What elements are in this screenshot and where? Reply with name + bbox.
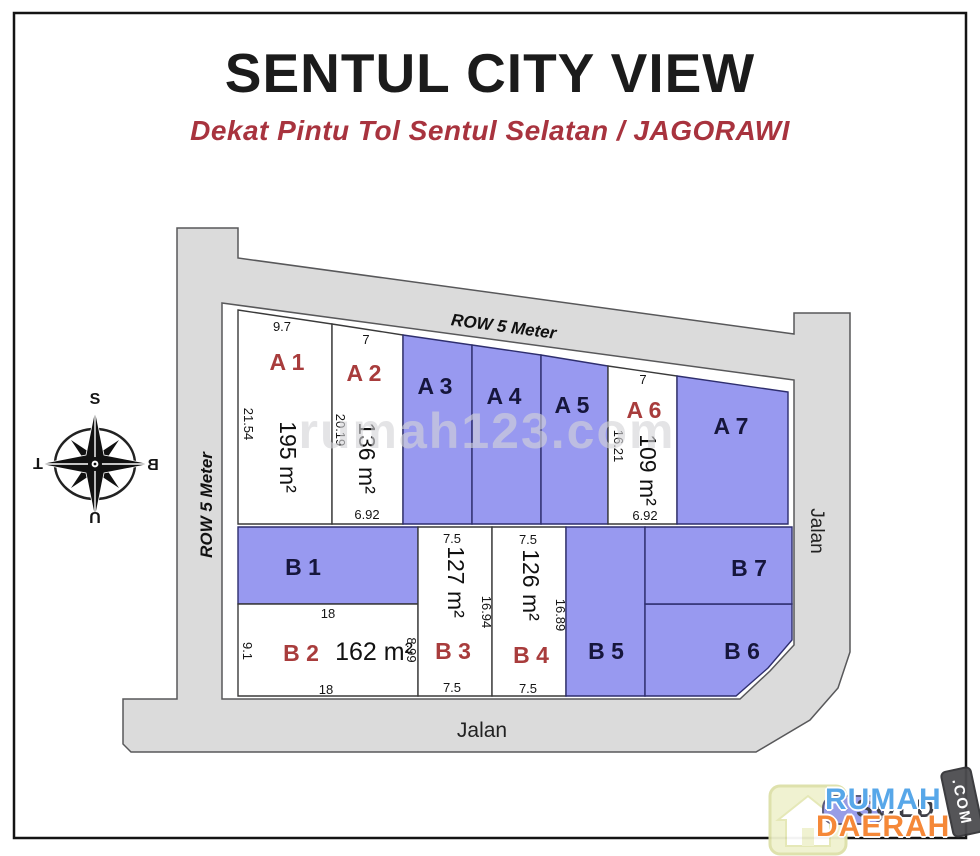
road-label-left-row: ROW 5 Meter — [197, 451, 216, 558]
plot-a6-dim-bottom: 6.92 — [632, 508, 657, 523]
plot-a7-shape — [677, 376, 788, 524]
compass-hub-dot — [94, 463, 97, 466]
plot-b5-shape — [566, 527, 645, 696]
plot-b4-dim-top: 7.5 — [519, 532, 537, 547]
plot-b7-shape — [645, 527, 792, 604]
compass-rose: S B U T — [33, 391, 159, 525]
plot-b2: 18 9.1 8.99 18 B 2 162 m² — [238, 604, 419, 697]
plot-b4: 7.5 16.89 7.5 B 4 126 m² — [492, 527, 568, 696]
plot-b1-label: B 1 — [285, 554, 321, 580]
plot-a3-label: A 3 — [418, 373, 453, 399]
plot-b3-label: B 3 — [435, 638, 471, 664]
plot-b2-area: 162 m² — [335, 638, 413, 666]
plot-a6-dim-top: 7 — [639, 372, 646, 387]
agency-logo: SOLD RUMAH DAERAH .COM — [768, 778, 980, 856]
compass-letter-bottom: U — [89, 508, 101, 525]
plot-a2-dim-top: 7 — [362, 332, 369, 347]
road-label-right-street: Jalan — [806, 508, 827, 553]
plot-b1-shape — [238, 527, 418, 604]
center-watermark: rumah123.com — [299, 403, 676, 459]
plot-b4-dim-bottom: 7.5 — [519, 681, 537, 696]
plot-a1-area: 195 m² — [275, 421, 301, 493]
plot-a7-label: A 7 — [714, 413, 749, 439]
compass-letter-left: T — [33, 454, 43, 471]
plot-b3-dim-bottom: 7.5 — [443, 680, 461, 695]
plot-b2-dim-left: 9.1 — [240, 642, 255, 660]
plot-b3: 7.5 16.94 7.5 B 3 127 m² — [418, 527, 494, 696]
plot-b5-label: B 5 — [588, 638, 624, 664]
plot-b2-dim-top: 18 — [321, 606, 335, 621]
plot-a1-label: A 1 — [270, 349, 305, 375]
plot-a2-dim-bottom: 6.92 — [354, 507, 379, 522]
plot-b2-label: B 2 — [283, 640, 319, 666]
plot-a7: A 7 — [677, 376, 788, 524]
road-label-bottom-street: Jalan — [457, 719, 507, 742]
plot-b4-label: B 4 — [513, 642, 549, 668]
plot-a2-label: A 2 — [347, 360, 382, 386]
plot-b2-dim-bottom: 18 — [319, 682, 333, 697]
logo-word-daerah: DAERAH — [816, 810, 950, 844]
plot-a1-dim-top: 9.7 — [273, 319, 291, 334]
plot-b4-area: 126 m² — [518, 549, 544, 621]
plot-b7: B 7 — [645, 527, 792, 604]
compass-letter-right: B — [147, 457, 159, 474]
compass-letter-top: S — [90, 391, 101, 408]
plot-b5: B 5 — [566, 527, 645, 696]
plot-b7-label: B 7 — [731, 555, 767, 581]
plot-b6-label: B 6 — [724, 638, 760, 664]
plot-b3-area: 127 m² — [443, 546, 469, 618]
plot-b3-dim-top: 7.5 — [443, 531, 461, 546]
plot-a1-dim-left: 21.54 — [241, 408, 256, 441]
site-plan: 9.7 21.54 A 1 195 m² 7 20.19 6.92 A 2 13… — [0, 0, 980, 856]
plot-b1: B 1 — [238, 527, 418, 604]
